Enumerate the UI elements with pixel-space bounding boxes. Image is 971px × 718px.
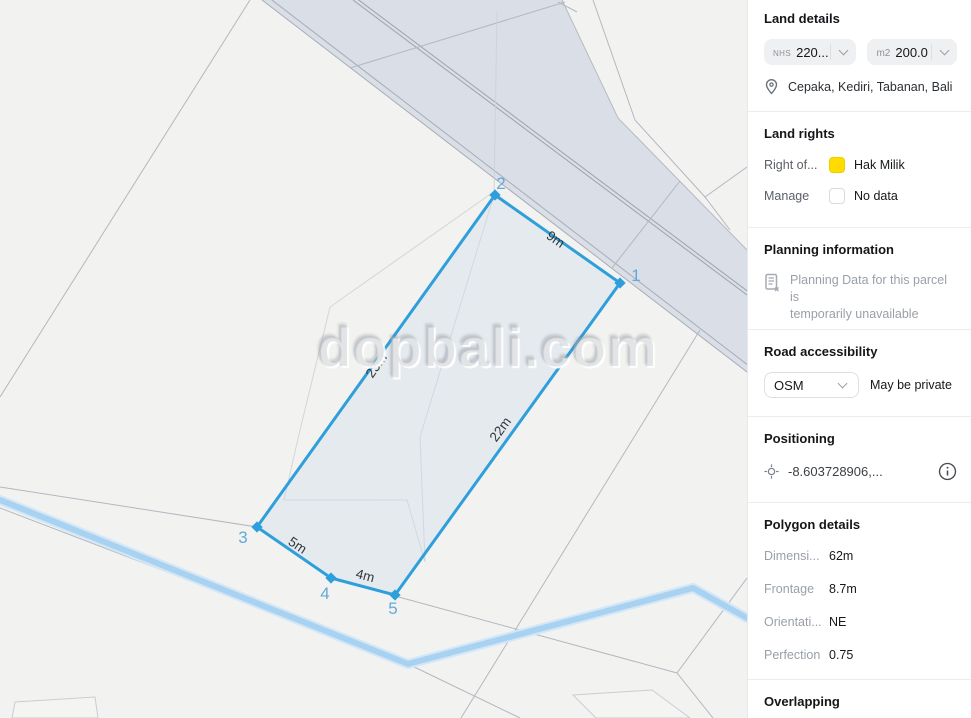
manage-label: Manage: [764, 189, 829, 203]
map-svg: 1 2 3 4 5 9m 23m 5m 4m 22m: [0, 0, 747, 718]
location-pin-icon: [764, 78, 779, 95]
manage-value: No data: [854, 189, 898, 203]
map-canvas[interactable]: 1 2 3 4 5 9m 23m 5m 4m 22m dopbali.com: [0, 0, 747, 718]
positioning-title: Positioning: [764, 431, 957, 446]
section-road: Road accessibility OSM May be private: [748, 330, 971, 417]
vertex-4-label: 4: [320, 584, 329, 603]
manage-swatch: [829, 188, 845, 204]
area-dropdown[interactable]: m2 200.0: [867, 39, 957, 65]
crosshair-icon: [764, 464, 779, 479]
orientation-value: NE: [829, 615, 846, 629]
road-status: May be private: [870, 378, 952, 392]
vertex-1-label: 1: [631, 266, 640, 285]
info-icon: [938, 462, 957, 481]
perfection-value: 0.75: [829, 648, 853, 662]
dimension-label: Dimensi...: [764, 549, 829, 563]
planning-message-line1: Planning Data for this parcel is: [790, 272, 957, 306]
document-unavailable-icon: [764, 273, 780, 292]
dimension-value: 62m: [829, 549, 853, 563]
orientation-label: Orientati...: [764, 615, 829, 629]
coordinates-value: -8.603728906,...: [788, 464, 883, 479]
land-rights-title: Land rights: [764, 126, 957, 141]
nhs-dropdown[interactable]: NHS 220...: [764, 39, 856, 65]
section-land-details: Land details NHS 220... m2 200.0: [748, 0, 971, 112]
vertex-3-label: 3: [238, 528, 247, 547]
area-value: 200.0: [895, 45, 928, 60]
polygon-details-title: Polygon details: [764, 517, 957, 532]
right-of-use-value: Hak Milik: [854, 158, 905, 172]
chevron-down-icon: [838, 379, 848, 389]
pill-divider: [931, 44, 932, 60]
overlapping-title: Overlapping: [764, 694, 957, 709]
details-sidebar: Land details NHS 220... m2 200.0: [747, 0, 971, 718]
info-button[interactable]: [938, 462, 957, 481]
right-of-use-swatch: [829, 157, 845, 173]
section-planning: Planning information Planning Data for t…: [748, 228, 971, 330]
frontage-label: Frontage: [764, 582, 829, 596]
planning-title: Planning information: [764, 242, 957, 257]
frontage-value: 8.7m: [829, 582, 857, 596]
chevron-down-icon: [839, 46, 849, 56]
nhs-prefix-label: NHS: [773, 49, 791, 58]
vertex-5-label: 5: [388, 599, 397, 618]
pill-divider: [830, 44, 831, 60]
road-source-value: OSM: [774, 378, 804, 393]
land-parcel-viewer: 1 2 3 4 5 9m 23m 5m 4m 22m dopbali.com L…: [0, 0, 971, 718]
land-details-title: Land details: [764, 11, 957, 26]
section-positioning: Positioning -8.603728906,...: [748, 417, 971, 503]
perfection-label: Perfection: [764, 648, 829, 662]
section-overlapping: Overlapping: [748, 680, 971, 718]
right-of-use-label: Right of...: [764, 158, 829, 172]
location-text: Cepaka, Kediri, Tabanan, Bali: [788, 80, 952, 94]
nhs-value: 220...: [796, 45, 829, 60]
section-polygon-details: Polygon details Dimensi... 62m Frontage …: [748, 503, 971, 680]
section-land-rights: Land rights Right of... Hak Milik Manage…: [748, 112, 971, 228]
road-source-dropdown[interactable]: OSM: [764, 372, 859, 398]
chevron-down-icon: [940, 46, 950, 56]
m2-prefix-label: m2: [876, 48, 890, 59]
planning-message-line2: temporarily unavailable: [790, 306, 957, 323]
vertex-2-label: 2: [496, 174, 505, 193]
road-title: Road accessibility: [764, 344, 957, 359]
